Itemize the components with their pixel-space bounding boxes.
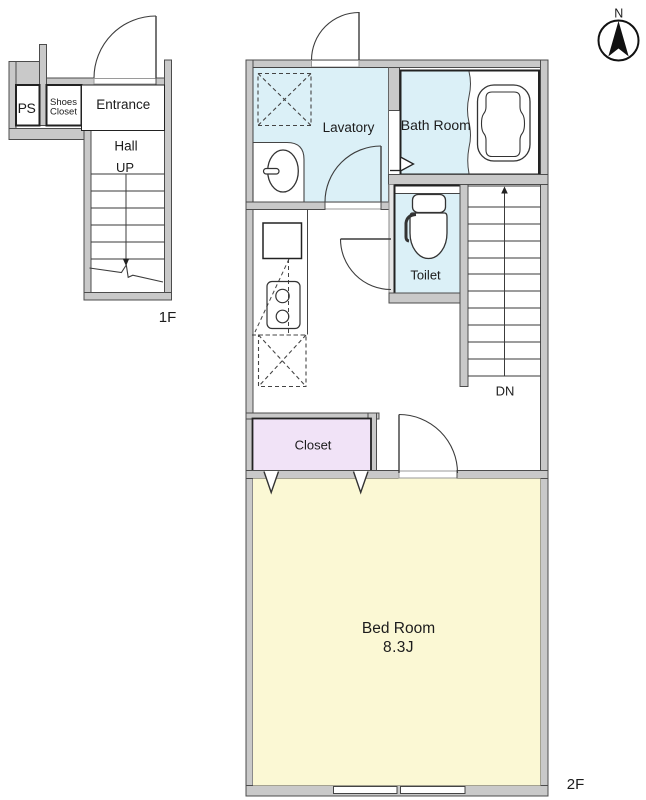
svg-text:DN: DN (496, 384, 515, 399)
svg-text:Bath Room: Bath Room (401, 117, 471, 133)
svg-text:Lavatory: Lavatory (323, 120, 375, 135)
svg-text:Closet: Closet (295, 438, 332, 453)
svg-text:N: N (614, 7, 623, 21)
svg-text:Entrance: Entrance (96, 97, 150, 112)
svg-text:PS: PS (18, 100, 36, 116)
svg-text:Hall: Hall (114, 139, 137, 154)
svg-text:Closet: Closet (50, 107, 77, 118)
svg-text:1F: 1F (159, 309, 177, 326)
svg-text:UP: UP (116, 160, 134, 175)
svg-text:Toilet: Toilet (410, 268, 441, 283)
svg-text:Bed Room: Bed Room (362, 620, 435, 637)
svg-text:2F: 2F (567, 776, 585, 793)
svg-text:8.3J: 8.3J (383, 639, 414, 656)
